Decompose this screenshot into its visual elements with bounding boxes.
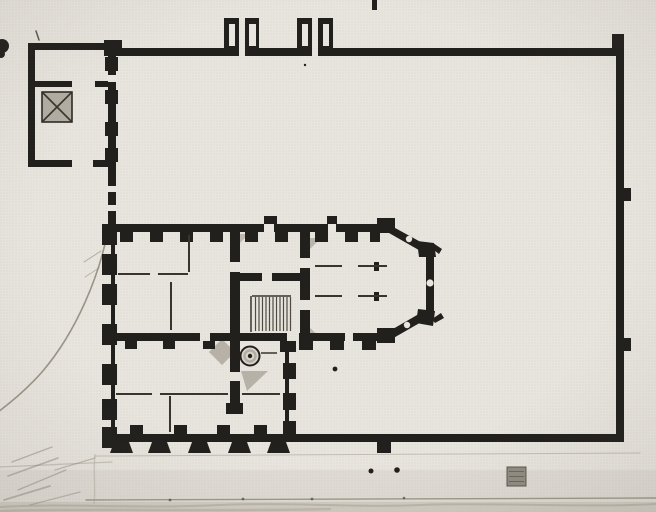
floor-plan-svg <box>0 0 656 512</box>
scan-vignette <box>0 0 656 512</box>
scanned-page: Halftone book reproduction of an archite… <box>0 0 656 512</box>
